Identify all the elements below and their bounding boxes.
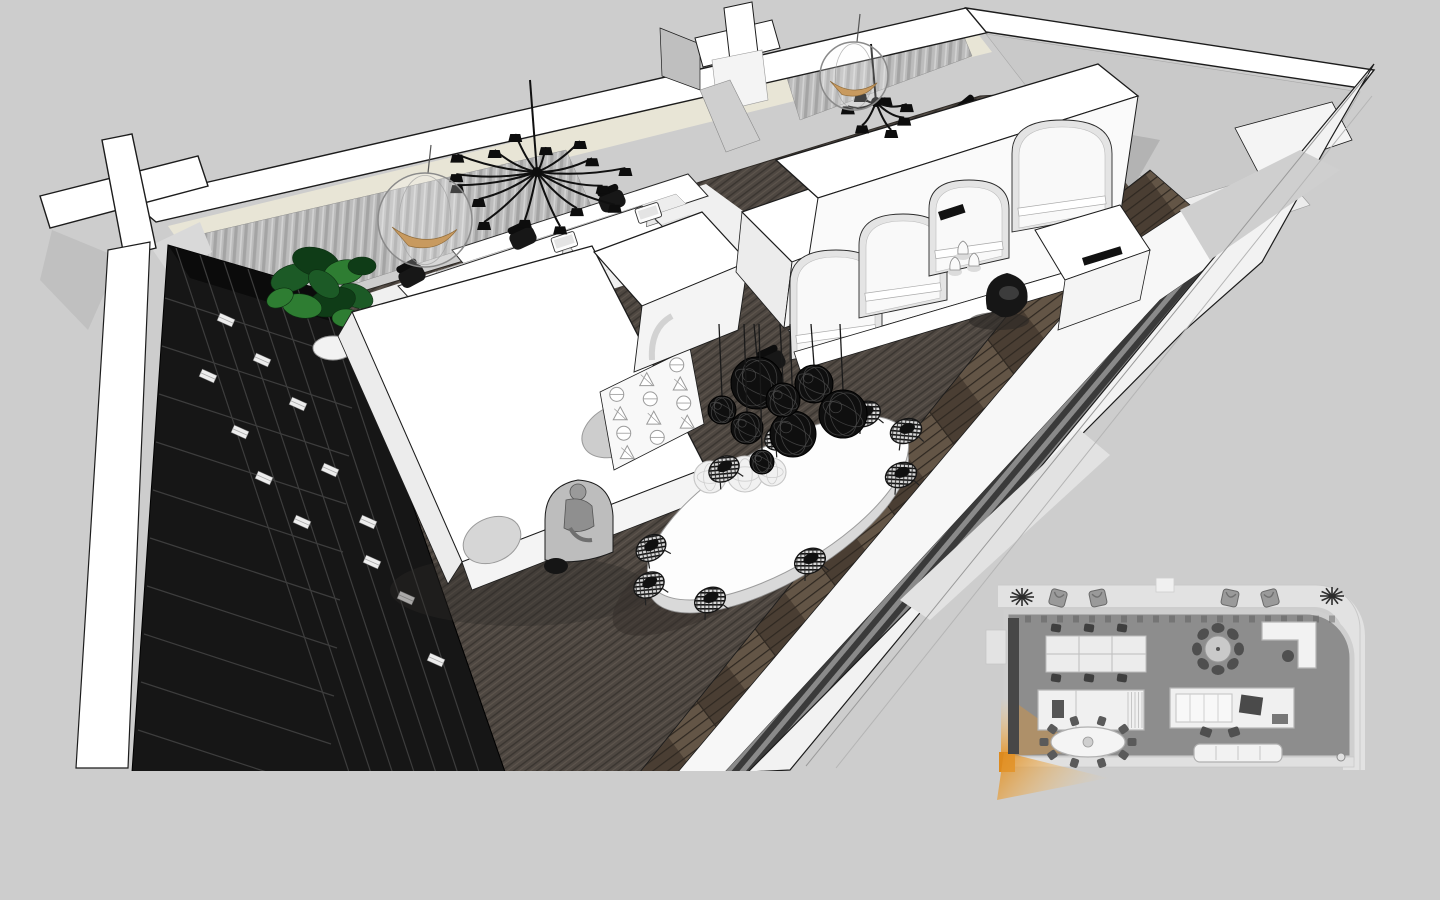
scene-svg <box>0 0 1440 900</box>
plan-terrace-chair <box>1089 589 1108 608</box>
plan-table-chair <box>1040 738 1049 746</box>
lamp-shade <box>508 134 522 142</box>
lamp-shade <box>618 168 632 176</box>
lamp-shade <box>570 208 584 216</box>
plan-round-chair <box>1212 623 1225 633</box>
floor-plan-inset <box>986 578 1360 800</box>
render-canvas <box>0 0 1440 900</box>
plan-desk-chair <box>1050 673 1061 682</box>
lamp-shade <box>897 118 911 126</box>
plan-desk-chair <box>1083 673 1094 682</box>
plan-terrace-chair <box>1260 588 1280 608</box>
plan-wall-stub <box>986 630 1006 664</box>
lamp-shade <box>900 104 914 112</box>
lamp-shade <box>855 125 869 133</box>
plan-terrace-chair <box>1048 588 1068 608</box>
pendant-sphere <box>731 412 763 444</box>
plan-corner-dot <box>1337 753 1345 761</box>
bubble-chair <box>378 173 472 267</box>
plan-round-chair <box>1212 665 1225 675</box>
lamp-shade <box>608 205 622 213</box>
lamp-shade <box>884 130 898 138</box>
pendant-sphere <box>819 390 867 438</box>
plan-desk-chair <box>1083 623 1094 632</box>
lamp-shade <box>472 199 486 207</box>
pendant-sphere <box>770 411 816 457</box>
lamp-shade <box>518 220 532 228</box>
plan-counter-chair <box>1282 650 1294 662</box>
lamp-shade <box>539 147 553 155</box>
plant-leaves <box>348 257 376 275</box>
plan-desk-chair <box>1116 673 1127 682</box>
plan-desk-chair <box>1050 623 1061 632</box>
pendant-sphere <box>750 450 774 474</box>
plan-terrace-chair <box>1221 589 1240 608</box>
plan-table-chair <box>1128 738 1137 746</box>
lamp-shade <box>488 150 502 158</box>
lamp-shade <box>585 158 599 166</box>
pendant-sphere <box>708 396 736 424</box>
lamp-shade <box>596 186 610 194</box>
plan-lounge-chair <box>1239 695 1263 716</box>
pendant-sphere <box>766 383 800 417</box>
bubble-chair <box>820 42 888 110</box>
plan-round-chair <box>1234 643 1244 656</box>
plan-round-chair <box>1192 643 1202 656</box>
plan-desk-chair <box>1116 623 1127 632</box>
plan-bookshelf <box>1008 618 1019 754</box>
lamp-shade <box>450 155 464 163</box>
lamp-shade <box>573 141 587 149</box>
lamp-shade <box>553 226 567 234</box>
chandelier-hub <box>532 167 542 177</box>
lamp-shade <box>477 222 491 230</box>
